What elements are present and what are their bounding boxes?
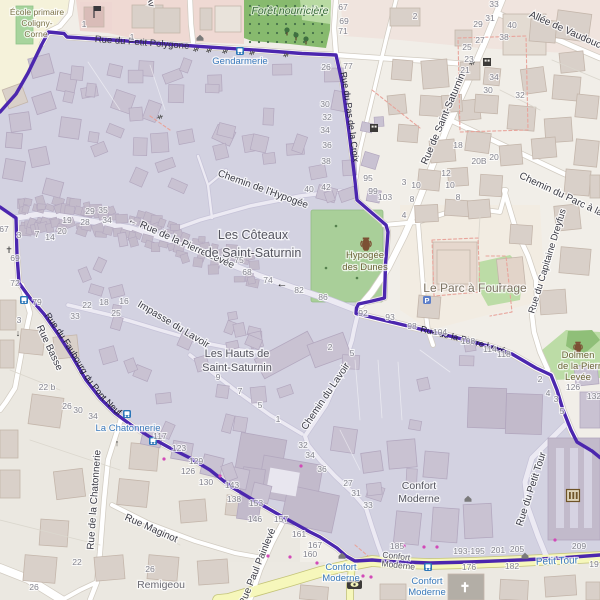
svg-text:Hypogée: Hypogée <box>346 250 384 261</box>
svg-text:32: 32 <box>298 440 308 450</box>
svg-text:Les Côteaux: Les Côteaux <box>218 228 289 242</box>
svg-text:30: 30 <box>483 85 493 95</box>
svg-text:193-195: 193-195 <box>453 546 485 556</box>
svg-text:92: 92 <box>358 308 368 318</box>
svg-text:3: 3 <box>402 177 407 187</box>
svg-text:Saint-Saturnin: Saint-Saturnin <box>202 362 272 374</box>
svg-text:Moderne: Moderne <box>398 493 440 505</box>
svg-text:26: 26 <box>62 401 72 411</box>
svg-text:82: 82 <box>294 285 304 295</box>
svg-text:160: 160 <box>303 549 318 559</box>
svg-text:21: 21 <box>460 65 470 75</box>
svg-text:38: 38 <box>321 156 331 166</box>
svg-text:5: 5 <box>560 406 565 416</box>
svg-text:10: 10 <box>411 180 421 190</box>
svg-text:33: 33 <box>363 500 373 510</box>
svg-text:34: 34 <box>320 125 330 135</box>
svg-text:126: 126 <box>566 382 581 392</box>
svg-text:42: 42 <box>321 182 331 192</box>
svg-text:1: 1 <box>130 32 135 42</box>
svg-text:Petit Tour: Petit Tour <box>536 555 579 567</box>
svg-text:23: 23 <box>464 54 474 64</box>
svg-text:4: 4 <box>546 388 551 398</box>
svg-text:205: 205 <box>510 544 525 554</box>
svg-text:185: 185 <box>390 541 405 551</box>
svg-text:Confort: Confort <box>325 562 357 573</box>
svg-text:Moderne: Moderne <box>408 587 446 598</box>
svg-text:22: 22 <box>72 557 82 567</box>
svg-text:30: 30 <box>73 405 83 415</box>
svg-text:3: 3 <box>17 315 22 325</box>
svg-text:95: 95 <box>363 173 373 183</box>
svg-text:26: 26 <box>145 564 155 574</box>
svg-text:4: 4 <box>402 210 407 220</box>
svg-text:Corne: Corne <box>24 29 47 39</box>
svg-text:118: 118 <box>497 349 511 359</box>
svg-text:146: 146 <box>248 514 263 524</box>
svg-text:27: 27 <box>343 478 353 488</box>
svg-text:201: 201 <box>491 545 506 555</box>
svg-text:29: 29 <box>473 19 483 29</box>
svg-text:19: 19 <box>62 215 72 225</box>
svg-text:182: 182 <box>505 561 520 571</box>
svg-text:de Saint-Saturnin: de Saint-Saturnin <box>205 246 302 260</box>
svg-text:161: 161 <box>292 529 307 539</box>
svg-text:77: 77 <box>343 61 353 71</box>
svg-text:26: 26 <box>29 582 39 592</box>
svg-text:36: 36 <box>322 140 332 150</box>
svg-text:40: 40 <box>304 184 314 194</box>
svg-text:103: 103 <box>378 192 393 202</box>
svg-text:5: 5 <box>350 348 355 358</box>
svg-text:209: 209 <box>572 541 587 551</box>
svg-text:École primaire: École primaire <box>10 7 65 17</box>
svg-text:Forêt nourricière: Forêt nourricière <box>251 5 328 17</box>
svg-text:2: 2 <box>328 342 333 352</box>
svg-text:129: 129 <box>189 456 204 466</box>
svg-text:30: 30 <box>320 99 330 109</box>
svg-text:34: 34 <box>88 411 98 421</box>
svg-text:126: 126 <box>181 466 196 476</box>
svg-text:72: 72 <box>10 278 20 288</box>
svg-text:des Dunes: des Dunes <box>342 262 388 273</box>
svg-text:114: 114 <box>483 344 497 354</box>
svg-text:31: 31 <box>485 13 495 23</box>
svg-text:33: 33 <box>489 0 499 9</box>
svg-text:104: 104 <box>433 327 448 337</box>
svg-text:↑: ↑ <box>115 438 120 448</box>
svg-text:Gendarmerie: Gendarmerie <box>212 56 267 67</box>
svg-text:28: 28 <box>80 217 90 227</box>
svg-text:20B: 20B <box>471 156 487 166</box>
svg-text:36: 36 <box>317 464 327 474</box>
svg-text:Moderne: Moderne <box>322 573 360 584</box>
svg-text:16: 16 <box>119 296 129 306</box>
svg-text:69: 69 <box>339 16 349 26</box>
svg-text:22: 22 <box>82 300 92 310</box>
svg-text:32: 32 <box>515 90 525 100</box>
svg-text:18: 18 <box>99 297 109 307</box>
svg-text:19: 19 <box>589 559 599 569</box>
svg-text:26: 26 <box>321 62 331 72</box>
svg-text:99: 99 <box>368 186 378 196</box>
svg-text:176: 176 <box>462 562 477 572</box>
svg-text:75: 75 <box>234 255 244 265</box>
svg-text:153: 153 <box>249 498 264 508</box>
svg-text:Dolmen: Dolmen <box>562 350 595 361</box>
svg-text:108: 108 <box>461 336 476 346</box>
svg-text:130: 130 <box>199 477 214 487</box>
svg-text:Le Parc à Fourrage: Le Parc à Fourrage <box>423 281 527 295</box>
svg-text:34: 34 <box>305 450 315 460</box>
svg-text:138: 138 <box>227 494 242 504</box>
svg-text:35: 35 <box>98 205 108 215</box>
svg-text:de la Pierre: de la Pierre <box>558 361 600 372</box>
svg-text:34: 34 <box>489 72 499 82</box>
svg-text:←: ← <box>277 278 288 290</box>
svg-text:157: 157 <box>274 514 289 524</box>
svg-text:Confort: Confort <box>402 480 437 492</box>
svg-text:10: 10 <box>445 180 455 190</box>
svg-text:123: 123 <box>172 443 187 453</box>
svg-text:2: 2 <box>413 11 418 21</box>
svg-text:La Chatonnerie: La Chatonnerie <box>96 423 161 434</box>
svg-text:8: 8 <box>410 194 415 204</box>
svg-text:40: 40 <box>507 20 517 30</box>
svg-text:1: 1 <box>276 414 281 424</box>
svg-text:117: 117 <box>153 431 167 441</box>
svg-text:68: 68 <box>242 267 252 277</box>
svg-text:69: 69 <box>10 253 20 263</box>
svg-text:98: 98 <box>407 321 417 331</box>
svg-text:7: 7 <box>35 229 40 239</box>
svg-text:2: 2 <box>538 374 543 384</box>
svg-text:7: 7 <box>238 386 243 396</box>
svg-text:132: 132 <box>587 391 600 401</box>
svg-text:67: 67 <box>0 224 9 234</box>
svg-text:Coligny-: Coligny- <box>21 18 52 28</box>
svg-text:71: 71 <box>338 26 348 36</box>
svg-text:P: P <box>424 296 429 305</box>
svg-text:79: 79 <box>32 297 42 307</box>
svg-text:27: 27 <box>475 35 485 45</box>
svg-text:12: 12 <box>441 168 451 178</box>
svg-text:33: 33 <box>70 311 80 321</box>
svg-text:25: 25 <box>462 42 472 52</box>
svg-text:14: 14 <box>45 232 55 242</box>
svg-text:25: 25 <box>111 308 121 318</box>
svg-text:38: 38 <box>499 32 509 42</box>
svg-text:3: 3 <box>554 394 559 404</box>
svg-text:31: 31 <box>351 488 361 498</box>
svg-text:18: 18 <box>453 140 463 150</box>
svg-text:93: 93 <box>385 312 395 322</box>
svg-text:1: 1 <box>82 19 87 29</box>
svg-text:Remigeou: Remigeou <box>137 579 185 591</box>
svg-text:20: 20 <box>57 226 67 236</box>
svg-text:3: 3 <box>17 230 22 240</box>
svg-text:20: 20 <box>489 152 499 162</box>
svg-text:74: 74 <box>263 275 273 285</box>
svg-text:Confort: Confort <box>411 576 443 587</box>
svg-text:67: 67 <box>338 2 348 12</box>
svg-text:8: 8 <box>456 192 461 202</box>
svg-text:Les Hauts de: Les Hauts de <box>205 348 270 360</box>
svg-text:32: 32 <box>322 112 332 122</box>
svg-text:34: 34 <box>102 215 112 225</box>
svg-text:9: 9 <box>216 372 221 382</box>
svg-text:22 b: 22 b <box>39 382 56 392</box>
svg-text:5: 5 <box>258 400 263 410</box>
svg-text:✝: ✝ <box>460 580 471 595</box>
svg-text:143: 143 <box>225 480 240 490</box>
svg-text:86: 86 <box>318 292 328 302</box>
svg-text:29: 29 <box>85 206 95 216</box>
svg-text:↓: ↓ <box>16 328 21 338</box>
